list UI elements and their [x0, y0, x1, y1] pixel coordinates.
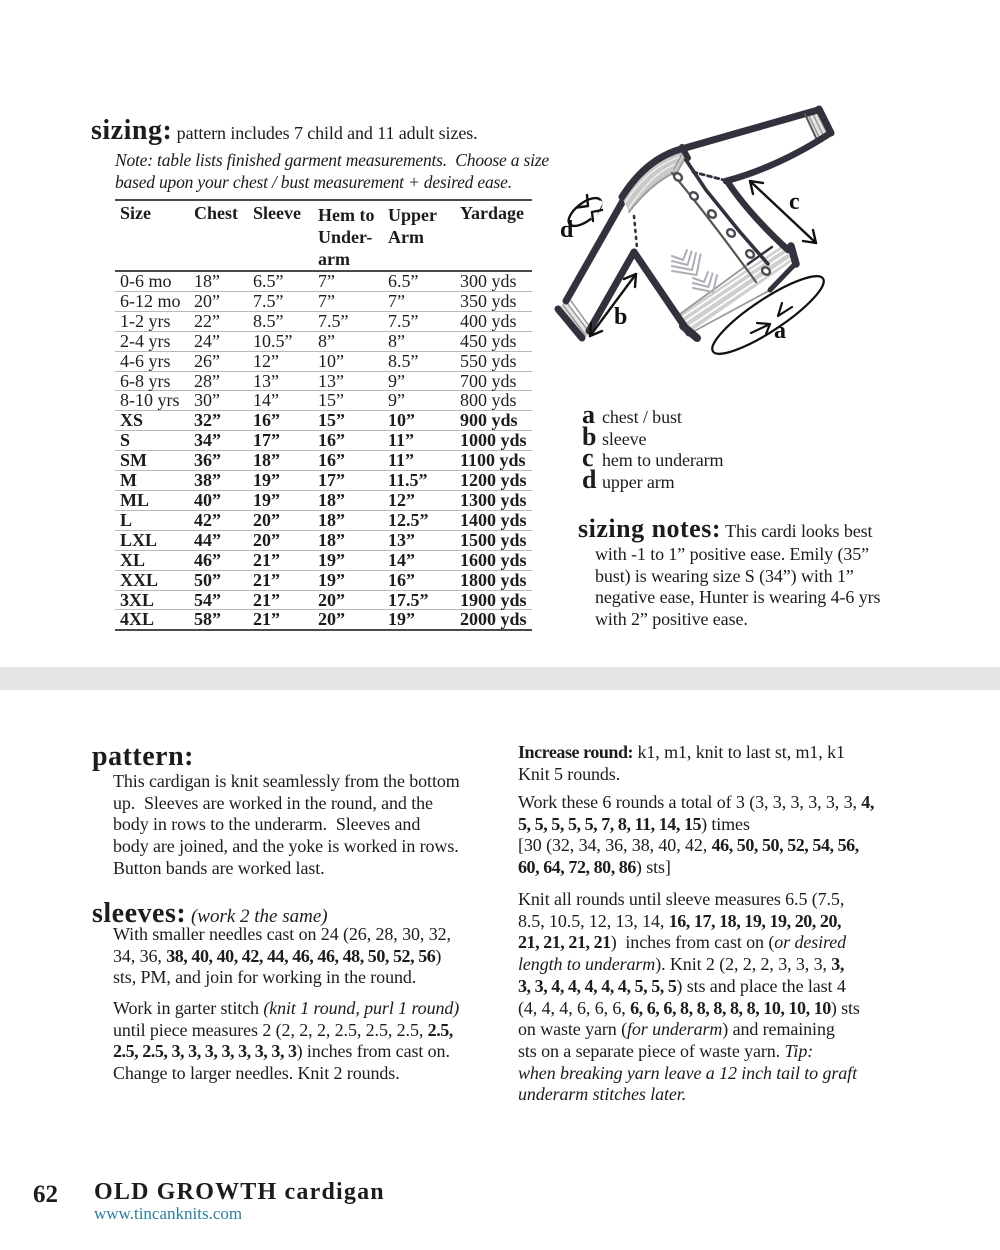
svg-text:b: b	[614, 304, 627, 330]
svg-text:a: a	[774, 318, 786, 344]
svg-text:c: c	[789, 189, 800, 215]
svg-text:d: d	[560, 217, 574, 243]
